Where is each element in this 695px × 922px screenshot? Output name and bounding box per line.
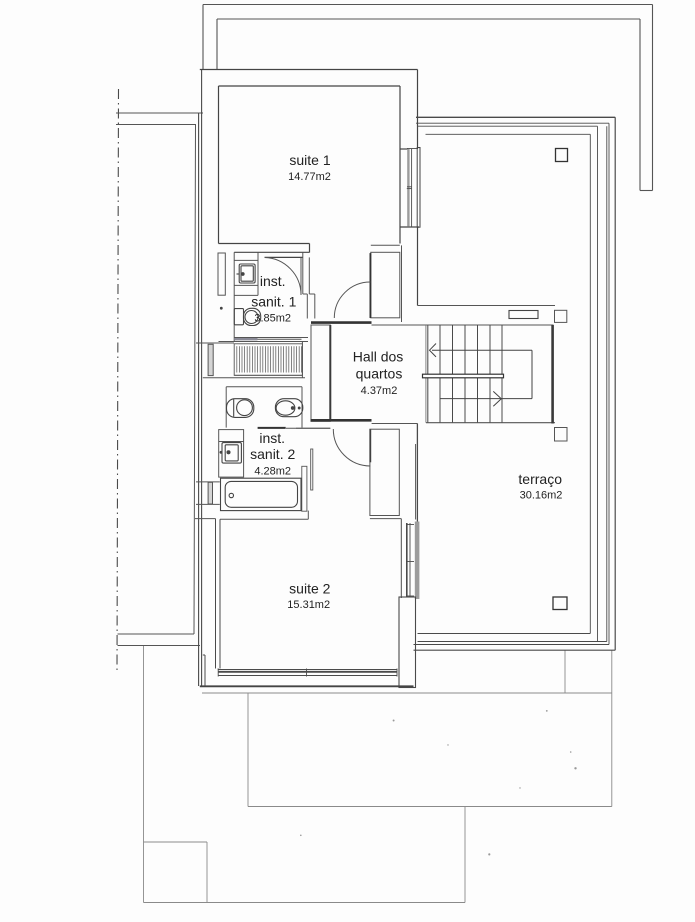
svg-text:Hall dos: Hall dos xyxy=(353,349,404,365)
svg-text:4.37m2: 4.37m2 xyxy=(361,385,398,397)
svg-text:3.85m2: 3.85m2 xyxy=(254,312,291,324)
svg-text:inst.: inst. xyxy=(260,273,286,289)
svg-text:sanit. 1: sanit. 1 xyxy=(251,293,296,309)
svg-text:quartos: quartos xyxy=(356,365,403,381)
svg-text:30.16m2: 30.16m2 xyxy=(520,490,563,502)
svg-text:4.28m2: 4.28m2 xyxy=(254,465,291,477)
svg-text:terraço: terraço xyxy=(518,471,562,487)
svg-text:inst.: inst. xyxy=(259,430,285,446)
svg-text:suite 1: suite 1 xyxy=(289,152,330,168)
svg-text:sanit. 2: sanit. 2 xyxy=(250,446,295,462)
svg-text:15.31m2: 15.31m2 xyxy=(287,599,330,611)
svg-text:suite 2: suite 2 xyxy=(289,581,330,597)
svg-text:14.77m2: 14.77m2 xyxy=(288,171,331,183)
